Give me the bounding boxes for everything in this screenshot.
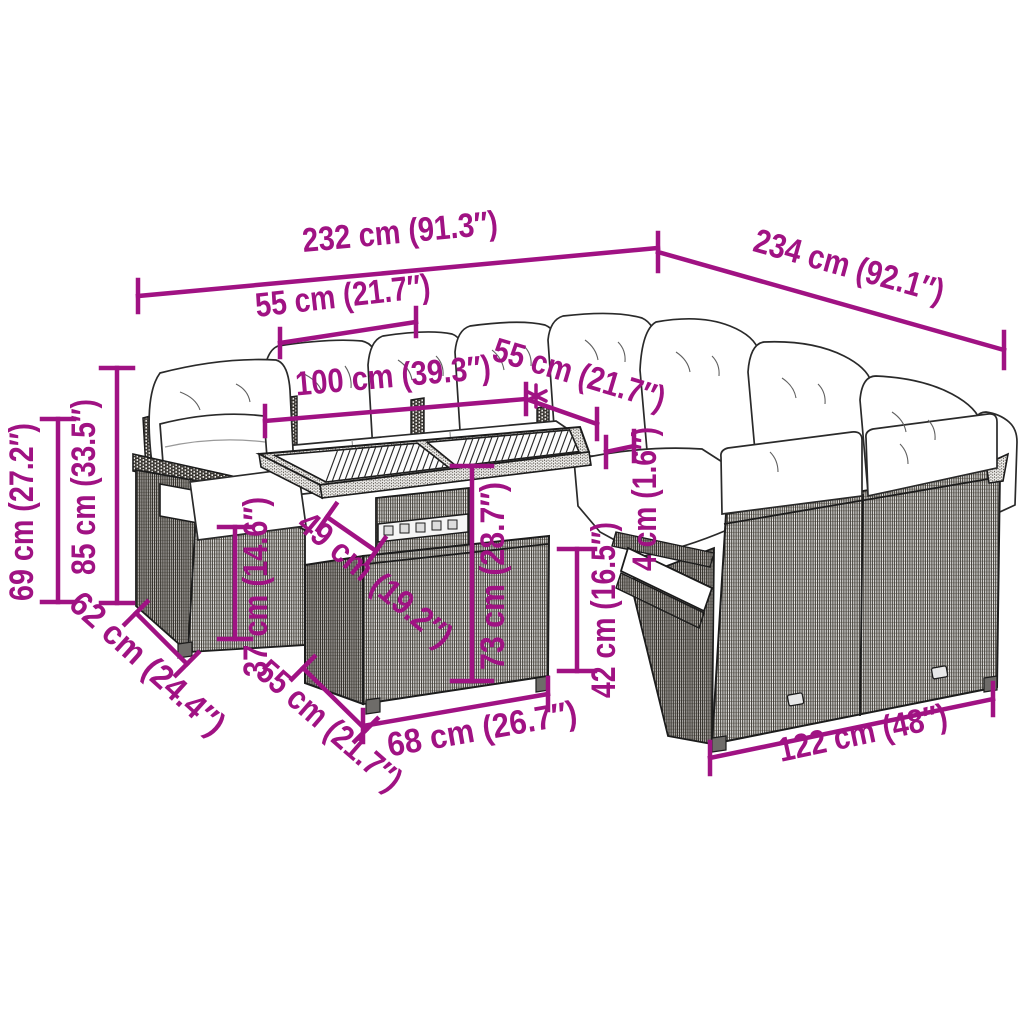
svg-text:73 cm (28.7″): 73 cm (28.7″) xyxy=(474,482,512,670)
svg-text:42 cm (16.5″): 42 cm (16.5″) xyxy=(585,522,623,698)
svg-text:69 cm (27.2″): 69 cm (27.2″) xyxy=(3,423,41,601)
svg-text:37 cm (14.6″): 37 cm (14.6″) xyxy=(237,497,275,677)
svg-text:85 cm (33.5″): 85 cm (33.5″) xyxy=(65,399,103,575)
svg-text:4 cm (1.6″): 4 cm (1.6″) xyxy=(626,427,664,571)
